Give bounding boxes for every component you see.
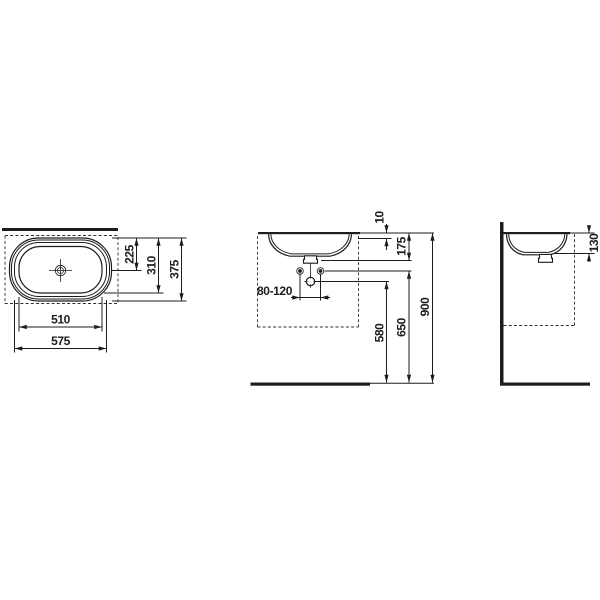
dim-label-510: 510	[51, 313, 71, 327]
dim-375: 375	[168, 238, 184, 301]
drain-outlet-front	[304, 275, 316, 287]
washbasin-dimension-drawing: 225 310 375 510 575	[0, 0, 600, 600]
fixing-hole-dot-right	[319, 269, 323, 273]
dim-80-120: 80-120	[257, 274, 330, 301]
dim-label-80-120: 80-120	[257, 284, 293, 298]
bowl-inner-line	[271, 234, 349, 254]
arrow-down-icon	[156, 285, 160, 293]
basin-section-side	[507, 234, 568, 262]
arrow-right-icon	[99, 346, 107, 350]
arrow-down-icon	[407, 375, 411, 383]
arrow-down-icon	[587, 225, 591, 233]
drain-stub-front	[304, 256, 318, 263]
dim-label-650: 650	[395, 317, 409, 337]
dim-10: 10	[358, 211, 392, 250]
arrow-up-icon	[156, 238, 160, 246]
arrow-left-icon	[321, 295, 329, 299]
dim-label-375: 375	[168, 259, 182, 279]
arrow-up-icon	[407, 271, 411, 279]
countertop-line-front	[258, 232, 360, 234]
dim-label-130: 130	[587, 233, 600, 253]
dim-label-575: 575	[51, 334, 71, 348]
dim-label-10: 10	[373, 211, 387, 224]
dim-510: 510	[19, 313, 102, 330]
arrow-up-icon	[179, 238, 183, 246]
floor-line-front	[251, 383, 371, 386]
arrow-up-icon	[384, 282, 388, 290]
dim-label-225: 225	[123, 244, 137, 264]
arrow-up-icon	[430, 233, 434, 241]
bowl-outer-line	[269, 234, 352, 256]
dim-label-175: 175	[395, 236, 409, 256]
arrow-left-icon	[19, 325, 27, 329]
arrow-up-icon	[134, 238, 138, 246]
fixing-hole-dot-left	[298, 269, 302, 273]
drain-stub-side	[539, 254, 553, 262]
drain-symbol-plan	[49, 259, 72, 282]
dim-225: 225	[123, 238, 139, 271]
arrow-up-icon	[384, 239, 388, 247]
dim-310: 310	[145, 238, 161, 293]
dim-label-580: 580	[373, 323, 387, 343]
arrow-right-icon	[94, 325, 102, 329]
front-view: 80-120 10 175 580	[251, 211, 435, 386]
dim-label-310: 310	[145, 255, 159, 275]
wall-line-plan	[2, 228, 118, 231]
arrow-down-icon	[179, 293, 183, 301]
arrow-down-icon	[384, 225, 388, 233]
bowl-inner-line	[509, 234, 565, 252]
floor-line-side	[500, 383, 590, 386]
technical-drawing-canvas: 225 310 375 510 575	[0, 0, 600, 600]
dim-label-900: 900	[418, 297, 432, 317]
arrow-up-icon	[587, 254, 591, 262]
dim-175: 175	[321, 233, 412, 261]
countertop-line-side	[504, 232, 571, 234]
arrow-down-icon	[384, 375, 388, 383]
wall-line-side	[500, 222, 504, 386]
dim-900: 900	[418, 233, 435, 383]
arrow-left-icon	[15, 346, 23, 350]
side-view: 130	[500, 222, 600, 386]
arrow-right-icon	[292, 295, 300, 299]
dim-575: 575	[15, 334, 107, 351]
arrow-down-icon	[430, 375, 434, 383]
plan-view: 225 310 375 510 575	[2, 228, 187, 353]
bowl-outer-line	[507, 234, 568, 255]
